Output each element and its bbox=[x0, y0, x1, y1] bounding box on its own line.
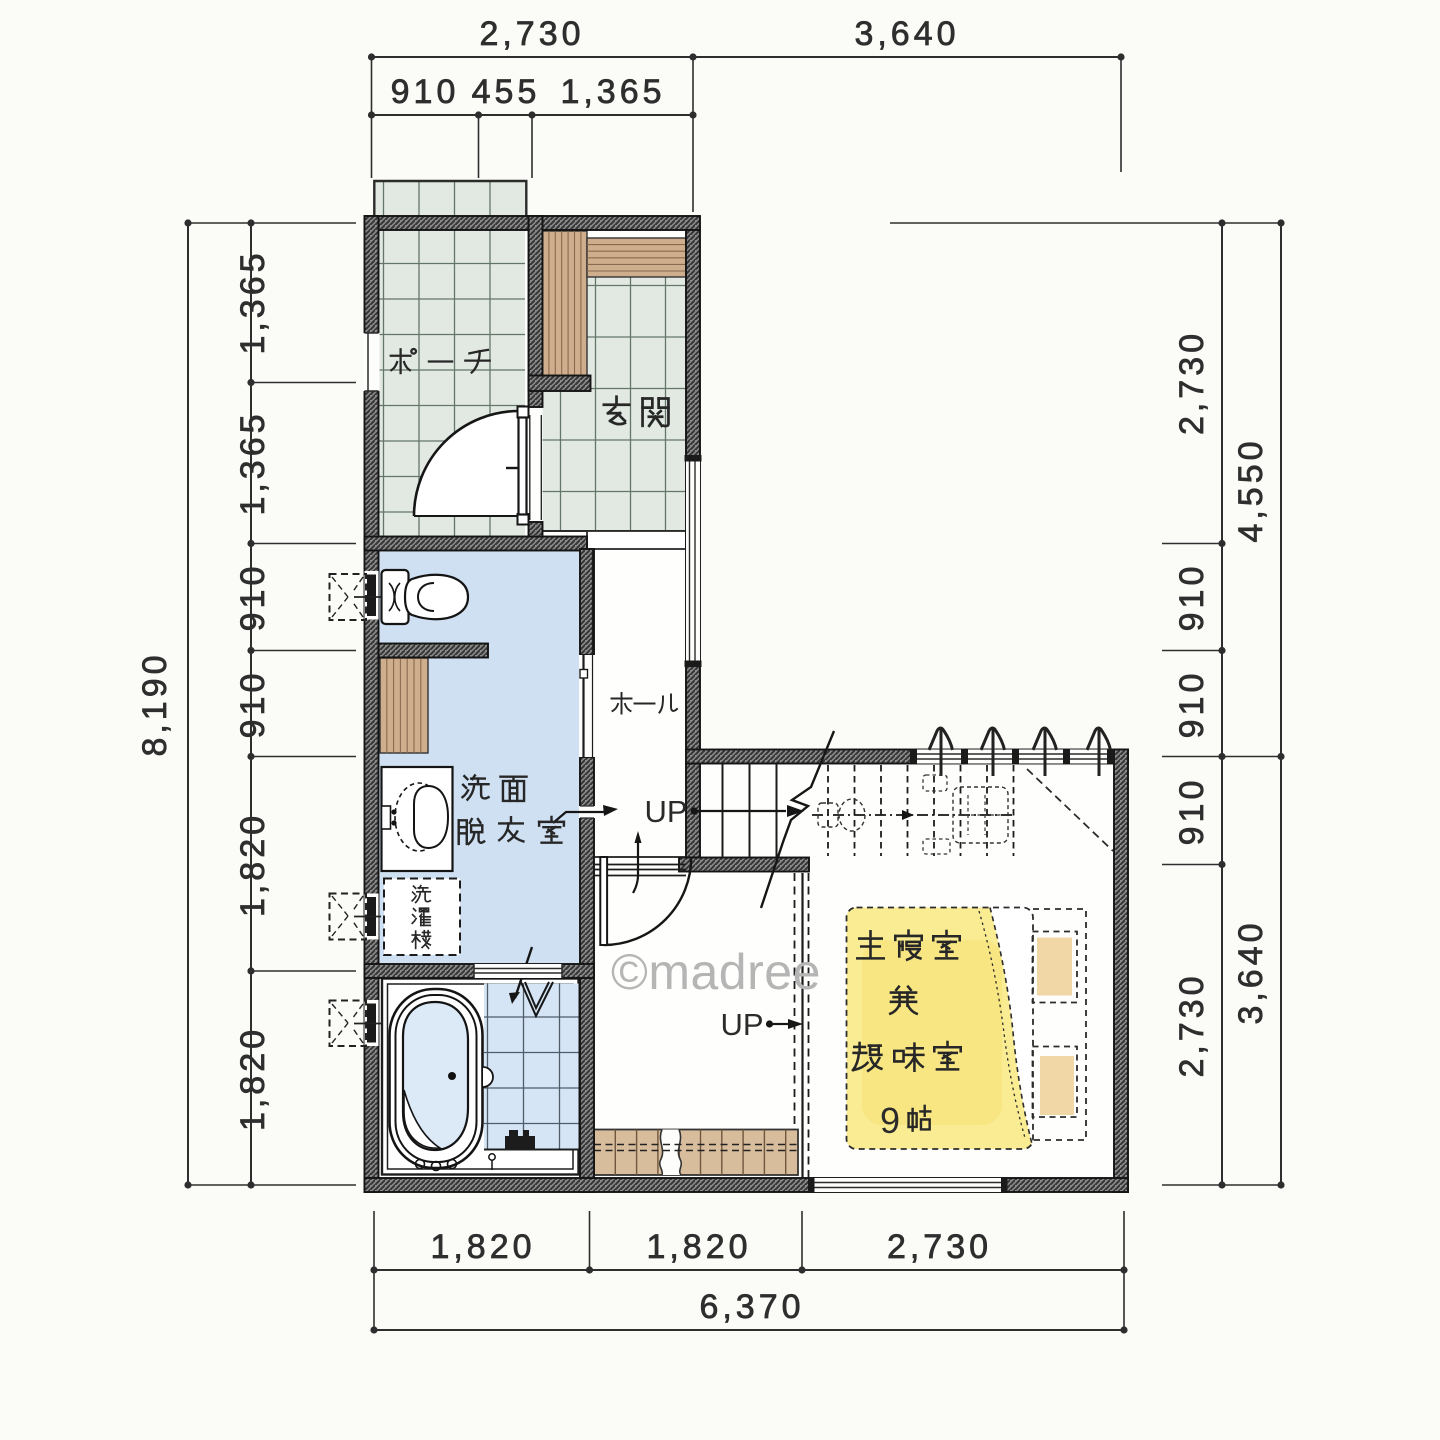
svg-text:910: 910 bbox=[234, 563, 272, 632]
svg-text:2,730: 2,730 bbox=[1173, 972, 1211, 1077]
svg-text:3,640: 3,640 bbox=[854, 15, 959, 53]
svg-text:UP: UP bbox=[720, 1007, 763, 1042]
svg-text:1,820: 1,820 bbox=[646, 1228, 751, 1266]
svg-text:3,640: 3,640 bbox=[1232, 919, 1270, 1024]
svg-text:4,550: 4,550 bbox=[1232, 437, 1270, 542]
svg-text:8,190: 8,190 bbox=[136, 651, 174, 756]
svg-text:1,365: 1,365 bbox=[234, 410, 272, 515]
svg-text:910: 910 bbox=[234, 670, 272, 739]
svg-text:910: 910 bbox=[1173, 670, 1211, 739]
svg-text:6,370: 6,370 bbox=[699, 1288, 804, 1326]
svg-text:910: 910 bbox=[1173, 563, 1211, 632]
svg-text:2,730: 2,730 bbox=[1173, 330, 1211, 435]
svg-text:910: 910 bbox=[391, 73, 460, 111]
svg-text:2,730: 2,730 bbox=[479, 15, 584, 53]
svg-text:455: 455 bbox=[472, 73, 541, 111]
svg-text:910: 910 bbox=[1173, 777, 1211, 846]
svg-text:2,730: 2,730 bbox=[887, 1228, 992, 1266]
svg-text:1,820: 1,820 bbox=[430, 1228, 535, 1266]
svg-text:9: 9 bbox=[880, 1100, 901, 1141]
svg-text:1,365: 1,365 bbox=[560, 73, 665, 111]
svg-text:©madree: ©madree bbox=[611, 944, 821, 1000]
svg-text:1,820: 1,820 bbox=[234, 812, 272, 917]
svg-text:1,365: 1,365 bbox=[234, 249, 272, 354]
svg-text:UP: UP bbox=[644, 794, 687, 829]
svg-text:1,820: 1,820 bbox=[234, 1026, 272, 1131]
